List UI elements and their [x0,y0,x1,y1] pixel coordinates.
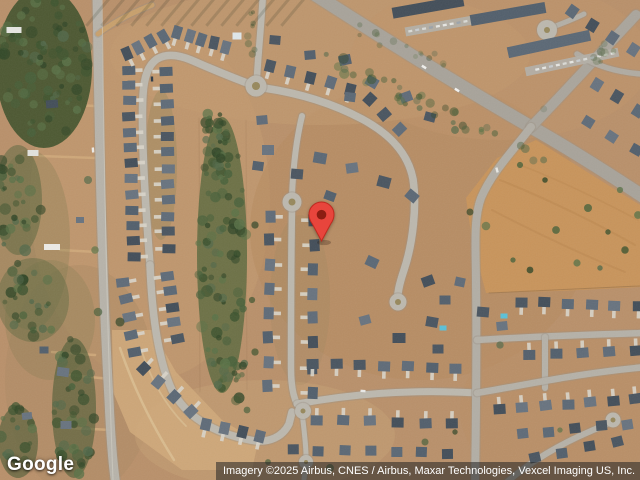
google-maps-satellite-view: Google Imagery ©2025 Airbus, CNES / Airb… [0,0,640,480]
attribution-text: Imagery ©2025 Airbus, CNES / Airbus, Max… [223,465,635,477]
pin-dot [317,210,327,220]
map-pin[interactable] [308,201,335,242]
pin-body [309,202,334,241]
google-logo[interactable]: Google [7,454,74,476]
attribution-bar: Imagery ©2025 Airbus, CNES / Airbus, Max… [216,462,640,480]
